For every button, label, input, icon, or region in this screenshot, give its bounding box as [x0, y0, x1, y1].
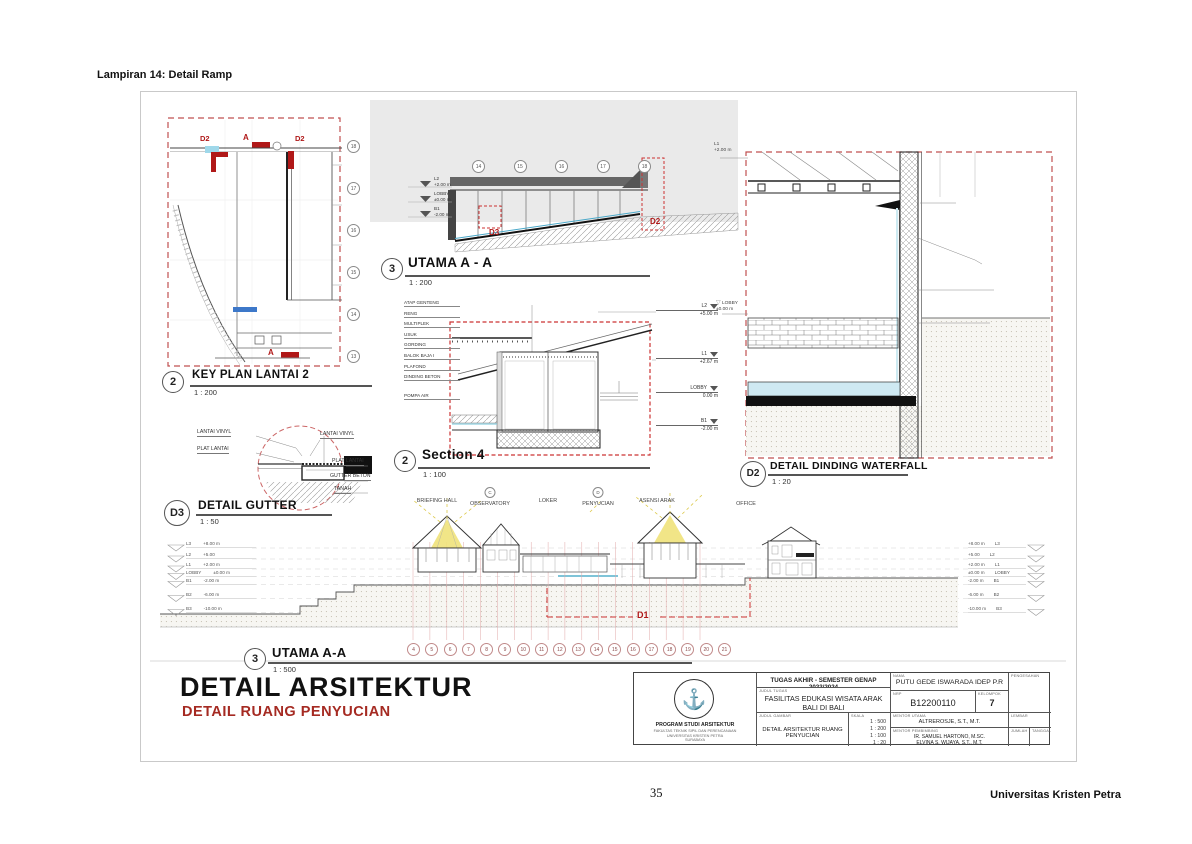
level-value: ±0.00 m	[968, 570, 985, 575]
title-underline	[405, 275, 650, 277]
section-level: L1+2.67 m	[656, 351, 718, 365]
grid-bubble: 17	[597, 160, 610, 173]
section-level: B1-2.00 m	[404, 206, 452, 217]
title-underline	[418, 467, 650, 469]
elevation-level: -2.00 mB1	[968, 578, 1026, 585]
title-block-logo-cell: ⚓ PROGRAM STUDI ARSITEKTUR FAKULTAS TEKN…	[634, 673, 757, 746]
grid-bubble: 6	[444, 643, 457, 656]
tb-skala-cell: SKALA 1 : 5001 : 2001 : 1001 : 20	[849, 713, 891, 746]
grid-bubble: 18	[347, 140, 360, 153]
level-value: +5.00	[968, 552, 980, 557]
title-underline	[268, 662, 692, 664]
level-value: -2.00 m	[434, 212, 450, 218]
section-level: L2+2.00 m	[404, 176, 452, 187]
material-label: PLAFOND	[404, 364, 460, 371]
material-label: USUK	[404, 332, 460, 339]
material-label: DINDING BETON	[404, 374, 460, 381]
level-value: ±0.00 m	[213, 570, 230, 575]
key-plan-number: 2	[162, 371, 184, 393]
elevation-level: +8.00 mL3	[968, 541, 1026, 548]
grid-bubble: 7	[462, 643, 475, 656]
grid-bubble: 4	[407, 643, 420, 656]
grid-bubble: 16	[347, 224, 360, 237]
key-plan-title: KEY PLAN LANTAI 2	[192, 369, 309, 381]
grid-bubble: 5	[425, 643, 438, 656]
elevation-level: B2-6.00 m	[186, 592, 256, 599]
appendix-heading: Lampiran 14: Detail Ramp	[97, 69, 232, 81]
room-grid-bubble: C	[485, 487, 496, 498]
level-value: +8.00 m	[203, 541, 220, 546]
level-name: L2	[186, 552, 191, 557]
tb-mentor-pembimbing-cell: MENTOR PEMBIMBING IR. SAMUEL HARTONO, M.…	[891, 728, 1009, 746]
room-label: OFFICE	[736, 501, 756, 507]
level-value: +2.67 m	[656, 359, 718, 365]
elevation-level: +5.00L2	[968, 552, 1026, 559]
gutter-label: TANAH	[334, 486, 351, 494]
gutter-label: LANTAI VINYL	[197, 429, 231, 437]
waterfall-title: DETAIL DINDING WATERFALL	[770, 460, 928, 472]
room-label: BRIEFING HALL	[417, 498, 457, 504]
level-value: +2.00 m	[203, 562, 220, 567]
level-value: -6.00 m	[204, 592, 220, 597]
grid-bubble: 8	[480, 643, 493, 656]
level-value: -6.00 m	[968, 592, 984, 597]
elevation-level: L3+8.00 m	[186, 541, 256, 548]
elevation-level: ±0.00 mLOBBY	[968, 570, 1026, 577]
marker-a-bottom: A	[268, 348, 274, 357]
elevation-level: -6.00 mB2	[968, 592, 1026, 599]
material-label: POMPA AIR	[404, 393, 460, 400]
section4-number: 2	[394, 450, 416, 472]
title-underline	[196, 514, 332, 516]
title-underline	[190, 385, 372, 387]
elevation-number: 3	[244, 648, 266, 670]
gutter-title: DETAIL GUTTER	[198, 498, 297, 512]
sheet-sub-title: DETAIL RUANG PENYUCIAN	[182, 704, 391, 720]
waterfall-level-l1: L1+2.00 m	[714, 142, 731, 154]
level-name: B3	[186, 606, 192, 611]
grid-bubble: 16	[627, 643, 640, 656]
grid-bubble: 14	[347, 308, 360, 321]
marker-d1: D1	[637, 610, 649, 620]
elevation-level: +2.00 mL1	[968, 562, 1026, 569]
elevation-level: L2+5.00	[186, 552, 256, 559]
tb-jumlah-cell: JUMLAH	[1009, 728, 1030, 746]
material-label: ATAP GENTENG	[404, 300, 460, 307]
grid-bubble: 17	[347, 182, 360, 195]
level-value: +5.00	[203, 552, 215, 557]
top-section-title: UTAMA A - A	[408, 255, 492, 270]
skala-value: 1 : 200	[870, 726, 886, 733]
marker-d2-left: D2	[200, 134, 210, 143]
elevation-level: B3-10.00 m	[186, 606, 256, 613]
level-name: B1	[994, 578, 1000, 583]
material-label: RENG	[404, 311, 460, 318]
university-logo: ⚓	[674, 679, 714, 719]
tb-nrp-cell: NRP B12200110	[891, 691, 976, 713]
skala-value: 1 : 20	[870, 740, 886, 746]
publisher-name: Universitas Kristen Petra	[990, 789, 1121, 801]
document-page: Lampiran 14: Detail Ramp	[0, 0, 1192, 844]
room-label: OBSERVATORY	[470, 501, 510, 507]
level-value: ±0.00 m	[434, 197, 451, 203]
tb-header-cell: TUGAS AKHIR - SEMESTER GENAP 2023/2024	[757, 673, 891, 688]
level-value: -10.00 m	[204, 606, 222, 611]
section4-title: Section 4	[422, 447, 485, 462]
tb-nama-cell: NAMA PUTU GEDE ISWARADA IDEP P.R	[891, 673, 1009, 691]
level-name: L1	[701, 351, 707, 357]
waterfall-scale: 1 : 20	[772, 477, 791, 486]
waterfall-number: D2	[740, 461, 766, 487]
level-name: B3	[996, 606, 1002, 611]
level-value: +2.00 m	[434, 182, 451, 188]
grid-bubble: 15	[608, 643, 621, 656]
level-name: B1	[186, 578, 192, 583]
level-name: L2	[990, 552, 995, 557]
grid-bubble: 15	[514, 160, 527, 173]
level-triangle	[710, 419, 718, 424]
gutter-label: LANTAI VINYL	[320, 431, 354, 439]
elevation-level: -10.00 mB3	[968, 606, 1026, 613]
sheet-main-title: DETAIL ARSITEKTUR	[180, 672, 473, 703]
section-level: L2+5.00 m	[656, 303, 718, 317]
skala-value: 1 : 100	[870, 733, 886, 740]
gutter-scale: 1 : 50	[200, 517, 219, 526]
level-name: LOBBY	[995, 570, 1010, 575]
level-name: L3	[995, 541, 1000, 546]
level-triangle	[710, 386, 718, 391]
level-triangle	[710, 352, 718, 357]
level-value: +2.00 m	[968, 562, 985, 567]
marker-a-top: A	[243, 133, 249, 142]
level-value: -2.00 m	[656, 426, 718, 432]
tb-pengesahan-cell: PENGESAHAN	[1009, 673, 1051, 713]
room-label: LOKER	[539, 498, 557, 504]
elevation-level: L1+2.00 m	[186, 562, 256, 569]
material-label: BALOK BAJA I	[404, 353, 460, 360]
section-level: LOBBY±0.00 m	[404, 191, 452, 202]
elevation-title: UTAMA A-A	[272, 645, 346, 660]
grid-bubble: 14	[472, 160, 485, 173]
skala-value: 1 : 500	[870, 719, 886, 726]
level-value: +8.00 m	[968, 541, 985, 546]
level-name: B1	[701, 418, 707, 424]
marker-d2-right: D2	[295, 134, 305, 143]
grid-bubble: 17	[645, 643, 658, 656]
level-name: LOBBY	[690, 385, 707, 391]
level-name: B2	[186, 592, 192, 597]
level-value: 0.00 m	[656, 393, 718, 399]
level-name: LOBBY	[186, 570, 201, 575]
gutter-label: PLAT LANTAI	[332, 458, 364, 466]
top-section-grid-bubbles: 1415161718	[472, 160, 651, 173]
level-value: -2.00 m	[968, 578, 984, 583]
room-label: PENYUCIAN	[582, 501, 613, 507]
page-number: 35	[650, 786, 663, 801]
grid-bubble: 19	[681, 643, 694, 656]
grid-bubble: 13	[347, 350, 360, 363]
program-text: PROGRAM STUDI ARSITEKTUR FAKULTAS TEKNIK…	[634, 722, 756, 743]
level-value: -2.00 m	[204, 578, 220, 583]
grid-bubble: 21	[718, 643, 731, 656]
material-label: GORDING	[404, 342, 460, 349]
waterfall-level-lobby: ▽ LOBBY±0.00 m	[716, 300, 738, 313]
grid-bubble: 13	[572, 643, 585, 656]
section4-scale: 1 : 100	[423, 470, 446, 479]
tb-judul-tugas-cell: JUDUL TUGAS FASILITAS EDUKASI WISATA ARA…	[757, 688, 891, 713]
section-level: LOBBY0.00 m	[656, 385, 718, 399]
elevation-grid-bubbles: 456789101112131415161718192021	[407, 643, 731, 656]
elevation-level: LOBBY±0.00 m	[186, 570, 256, 577]
marker-d2: D2	[650, 217, 660, 226]
level-name: L1	[995, 562, 1000, 567]
marker-d3: D3	[489, 228, 499, 237]
room-grid-bubble: D	[593, 487, 604, 498]
level-name: L2	[701, 303, 707, 309]
tb-mentor-utama-cell: MENTOR UTAMA ALTREROSJE, S.T., M.T.	[891, 713, 1009, 728]
level-value: +5.00 m	[656, 311, 718, 317]
key-plan-grid-bubbles: 181716151413	[347, 140, 360, 363]
gutter-label: GUTTER BETON	[330, 473, 371, 481]
gutter-number: D3	[164, 500, 190, 526]
key-plan-scale: 1 : 200	[194, 388, 217, 397]
level-name: L1	[186, 562, 191, 567]
grid-bubble: 18	[663, 643, 676, 656]
grid-bubble: 14	[590, 643, 603, 656]
grid-bubble: 20	[700, 643, 713, 656]
grid-bubble: 16	[555, 160, 568, 173]
grid-bubble: 15	[347, 266, 360, 279]
section-level: B1-2.00 m	[656, 418, 718, 432]
elevation-level: B1-2.00 m	[186, 578, 256, 585]
tb-judul-gambar-cell: JUDUL GAMBAR DETAIL ARSITEKTUR RUANG PEN…	[757, 713, 849, 746]
top-section-scale: 1 : 200	[409, 278, 432, 287]
level-name: B2	[994, 592, 1000, 597]
grid-bubble: 11	[535, 643, 548, 656]
tb-lembar-cell: LEMBAR	[1009, 713, 1051, 728]
level-value: -10.00 m	[968, 606, 986, 611]
grid-bubble: 9	[498, 643, 511, 656]
title-block: ⚓ PROGRAM STUDI ARSITEKTUR FAKULTAS TEKN…	[633, 672, 1050, 745]
title-underline	[768, 474, 908, 476]
grid-bubble: 18	[638, 160, 651, 173]
level-name: L3	[186, 541, 191, 546]
grid-bubble: 10	[517, 643, 530, 656]
gutter-label: PLAT LANTAI	[197, 446, 229, 454]
tb-tanggal-cell: TANGGAL	[1030, 728, 1051, 746]
tb-kelompok-cell: KELOMPOK 7	[976, 691, 1009, 713]
top-section-number: 3	[381, 258, 403, 280]
grid-bubble: 12	[553, 643, 566, 656]
material-label: MULTIPLEK	[404, 321, 460, 328]
room-label: ASENSI ARAK	[639, 498, 675, 504]
